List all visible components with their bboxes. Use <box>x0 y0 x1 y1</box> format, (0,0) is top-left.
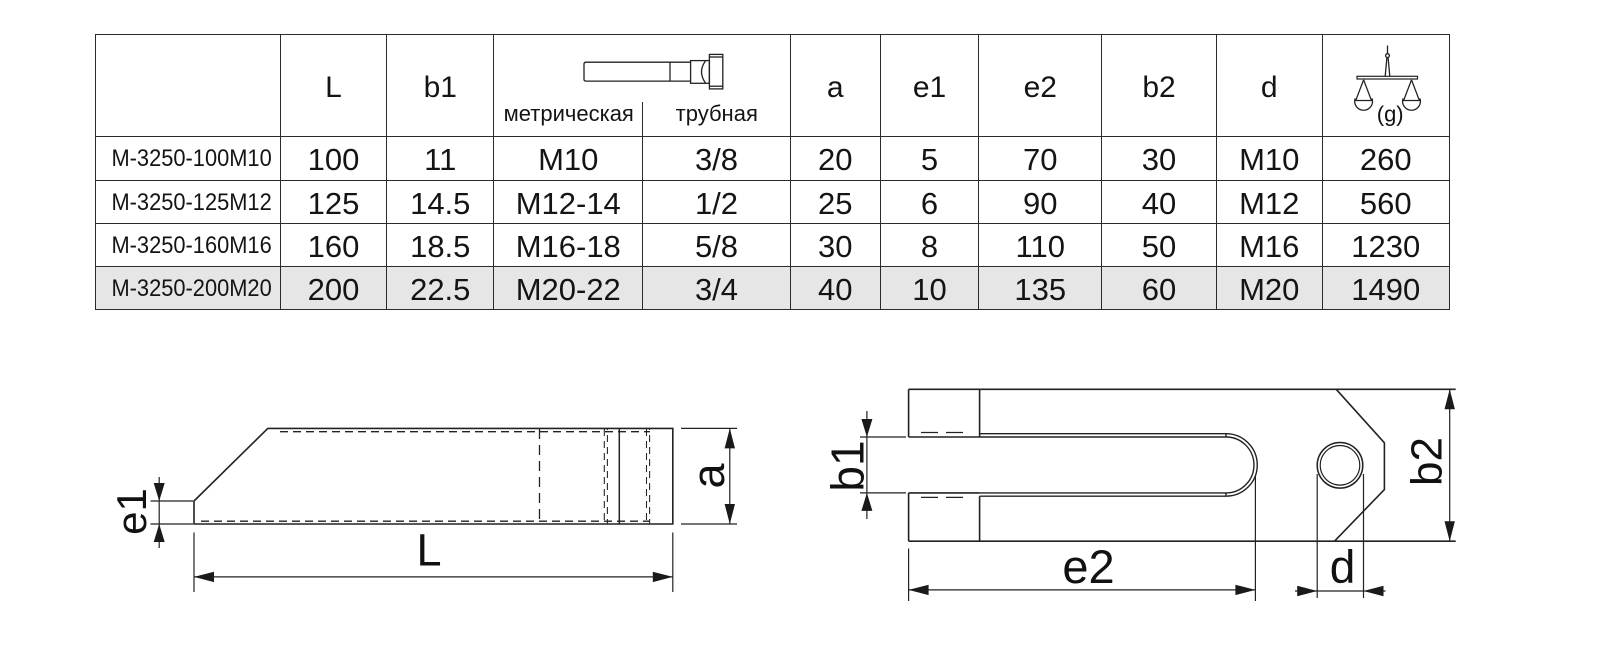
svg-text:a: a <box>683 463 734 489</box>
svg-text:d: d <box>1330 541 1356 593</box>
svg-text:b2: b2 <box>1403 437 1452 486</box>
svg-text:b1: b1 <box>822 440 874 491</box>
svg-text:e1: e1 <box>108 488 155 535</box>
svg-text:L: L <box>416 525 441 576</box>
svg-text:e2: e2 <box>1062 540 1114 593</box>
svg-text:(g): (g) <box>1377 102 1404 127</box>
